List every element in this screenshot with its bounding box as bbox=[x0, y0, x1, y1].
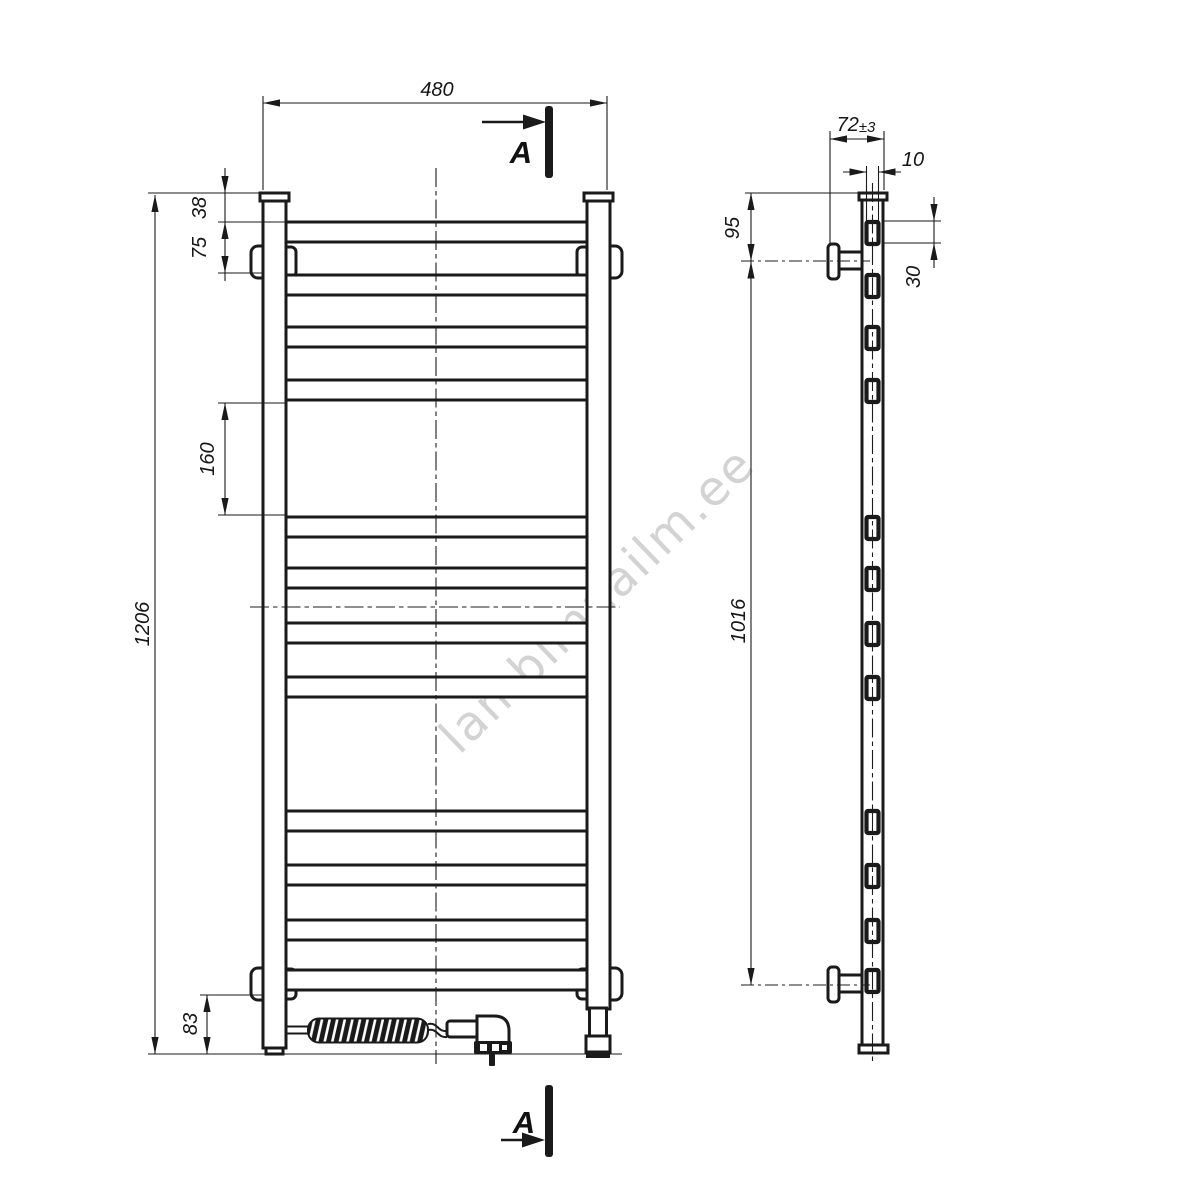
dim-label: 72 bbox=[837, 114, 859, 136]
cord-coil bbox=[308, 1019, 428, 1043]
right-post-cap bbox=[584, 193, 613, 201]
section-marker-bottom: A bbox=[501, 1085, 553, 1157]
heating-element-housing bbox=[586, 1008, 610, 1058]
dim-label: 1016 bbox=[728, 598, 750, 643]
dim-rung-gap: 160 bbox=[197, 403, 229, 515]
side-tube-bottom-cap bbox=[859, 1045, 888, 1053]
dim-label: 95 bbox=[722, 216, 744, 239]
section-marker-top: A bbox=[482, 106, 553, 178]
power-cord bbox=[286, 1016, 512, 1066]
left-post-cap bbox=[260, 193, 289, 201]
dim-label: 480 bbox=[420, 79, 453, 101]
section-label: A bbox=[509, 135, 532, 170]
dim-label: 10 bbox=[902, 149, 924, 171]
drawing-sheet: lambimaailm.ee bbox=[0, 0, 1200, 1200]
left-post-foot bbox=[266, 1048, 283, 1054]
dim-overall-width: 480 bbox=[263, 79, 607, 107]
dim-bracket-positions: 95 1016 bbox=[722, 193, 755, 985]
dim-label: 30 bbox=[903, 266, 925, 288]
dim-wall-distance: 72±3 bbox=[830, 114, 884, 143]
dim-label: 38 bbox=[189, 197, 211, 219]
section-label: A bbox=[512, 1105, 535, 1140]
dim-bottom-offset: 83 bbox=[180, 995, 211, 1054]
right-post bbox=[587, 197, 610, 1009]
dim-label: 83 bbox=[180, 1013, 202, 1035]
towel-rail-technical-drawing: lambimaailm.ee bbox=[0, 0, 1200, 1200]
dim-top-offsets: 38 75 bbox=[189, 168, 229, 281]
dim-label: 1206 bbox=[132, 601, 154, 646]
plug-pin bbox=[489, 1054, 495, 1066]
dim-label: 160 bbox=[197, 442, 219, 475]
dim-tolerance: ±3 bbox=[859, 119, 876, 136]
side-view bbox=[741, 166, 888, 1062]
svg-text:72±3: 72±3 bbox=[837, 114, 876, 136]
dim-overall-height: 1206 bbox=[132, 195, 159, 1054]
plug bbox=[447, 1016, 512, 1066]
dim-label: 75 bbox=[189, 236, 211, 259]
left-post bbox=[263, 197, 286, 1048]
